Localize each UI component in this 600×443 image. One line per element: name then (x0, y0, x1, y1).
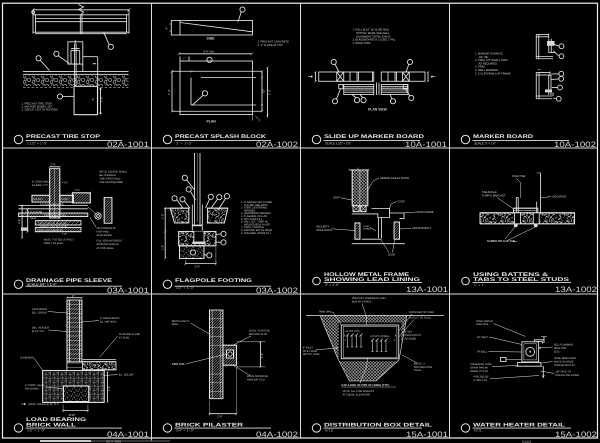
svg-text:FIN FLR SLAB: FIN FLR SLAB (25, 210, 42, 213)
svg-text:3" = 1'-0": 3" = 1'-0" (325, 283, 340, 287)
svg-text:1" = 1': 1" = 1' (474, 283, 484, 287)
svg-text:8": 8" (72, 295, 74, 298)
svg-text:TWO PIPES WILL: TWO PIPES WILL (99, 178, 121, 181)
svg-text:EA SIDE TYP: EA SIDE TYP (32, 184, 48, 187)
svg-text:N.T.S.: N.T.S. (474, 429, 482, 433)
svg-text:DOOR FRAME: DOOR FRAME (416, 211, 434, 214)
svg-text:WATER HEATER DETAIL: WATER HEATER DETAIL (473, 422, 566, 428)
svg-text:FTG: FTG (62, 181, 67, 184)
svg-text:FURR'G BRACKET: FURR'G BRACKET (482, 194, 506, 197)
svg-text:1'-8": 1'-8" (99, 96, 103, 102)
svg-text:BL. NATURAL: BL. NATURAL (100, 321, 117, 324)
svg-text:2'-0": 2'-0" (195, 264, 201, 268)
svg-text:4": 4" (165, 27, 169, 30)
svg-text:7": 7" (183, 57, 186, 61)
svg-text:13A-1002: 13A-1002 (555, 285, 597, 294)
svg-text:PRECAST TIRE STOP: PRECAST TIRE STOP (26, 134, 101, 140)
svg-text:SEAL: SEAL (30, 217, 37, 220)
svg-text:1'-4": 1'-4" (267, 89, 271, 95)
svg-text:AROUND SLEEVE: AROUND SLEEVE (97, 243, 119, 246)
svg-text:INSULATION: INSULATION (316, 229, 332, 232)
svg-text:1'-0": 1'-0" (161, 214, 164, 219)
svg-text:PIER AND: PIER AND (97, 231, 109, 234)
svg-text:3/4" = 1'-0": 3/4" = 1'-0" (176, 429, 195, 433)
svg-text:ANCHOR SLOT: ANCHOR SLOT (249, 333, 268, 336)
svg-text:TANK WALL: TANK WALL (319, 311, 334, 314)
svg-text:PLAN: PLAN (207, 120, 217, 124)
svg-text:TABS TO STEEL STUDS: TABS TO STEEL STUDS (473, 277, 570, 283)
svg-text:7'-0": 7'-0" (75, 189, 80, 192)
svg-text:FROM SEPTIC TANK: FROM SEPTIC TANK (409, 311, 434, 314)
svg-text:ON GRADE: ON GRADE (25, 387, 39, 390)
svg-text:ARMOR GRILLE DOOR: ARMOR GRILLE DOOR (380, 177, 409, 180)
svg-text:DRAIN TO FLR: DRAIN TO FLR (470, 370, 488, 373)
svg-text:MARKER BOARD: MARKER BOARD (473, 134, 533, 140)
svg-text:1/2" = 1'-0": 1/2" = 1'-0" (176, 286, 195, 290)
svg-text:SEL. GROUT: SEL. GROUT (32, 312, 48, 315)
svg-text:LINING: LINING (363, 227, 371, 230)
svg-text:SCREW TIE CLIP TAB: SCREW TIE CLIP TAB (487, 240, 515, 243)
svg-text:AS REQD: AS REQD (405, 338, 417, 341)
svg-text:FILL VOID W/ GROUT: FILL VOID W/ GROUT (97, 240, 124, 243)
svg-text:B.L. BELOW: B.L. BELOW (119, 373, 134, 376)
svg-text:1 1/2" = 1'-0": 1 1/2" = 1'-0" (27, 141, 48, 145)
svg-text:USE AS REQUIRED: USE AS REQUIRED (99, 181, 123, 184)
svg-text:HP VENT: HP VENT (477, 336, 489, 339)
svg-text:NOTE FTG SEE STRUCT: NOTE FTG SEE STRUCT (44, 238, 75, 241)
svg-text:1'-4": 1'-4" (108, 386, 111, 391)
svg-text:2'-0": 2'-0" (69, 413, 76, 417)
svg-text:1'-4": 1'-4" (167, 89, 171, 95)
svg-text:GROUT FILL ALL VOID: GROUT FILL ALL VOID (40, 225, 67, 228)
svg-text:2x4 KEY: 2x4 KEY (33, 198, 43, 201)
svg-text:03A-1001: 03A-1001 (107, 286, 149, 295)
svg-text:15A-1002: 15A-1002 (555, 430, 597, 439)
svg-text:10A-1002: 10A-1002 (554, 140, 596, 149)
svg-text:BRICK WALL: BRICK WALL (26, 422, 77, 428)
svg-text:9. CRUSHED STONE FILL: 9. CRUSHED STONE FILL (241, 232, 272, 235)
svg-text:02A-1002: 02A-1002 (256, 140, 298, 149)
svg-text:2. 1" SLOPE AT TOP: 2. 1" SLOPE AT TOP (258, 44, 283, 47)
svg-text:04A-1002: 04A-1002 (256, 430, 298, 439)
svg-text:SCALE: 1 1/2" = 1'-0": SCALE: 1 1/2" = 1'-0" (325, 141, 352, 145)
svg-text:N.T.S.: N.T.S. (325, 429, 334, 433)
svg-text:1'-6": 1'-6" (161, 245, 164, 250)
svg-text:WALL: WALL (172, 323, 180, 326)
svg-text:CAP & END OF PIPE W/ LINING (T: CAP & END OF PIPE W/ LINING (TYP) (341, 384, 389, 387)
svg-text:1/2 SLEEVE CAULK: 1/2 SLEEVE CAULK (40, 203, 64, 206)
svg-text:LEAD: LEAD (388, 254, 395, 257)
svg-text:10A-1001: 10A-1001 (405, 140, 447, 149)
svg-text:OUTLET LATERAL: OUTLET LATERAL (370, 335, 390, 338)
svg-text:3. EDGE TRIM: 3. EDGE TRIM (353, 42, 372, 45)
svg-text:ANCHOR TIES: ANCHOR TIES (247, 379, 265, 382)
svg-text:FLASHING: FLASHING (20, 356, 33, 359)
svg-text:AT PIPE WALL: AT PIPE WALL (97, 247, 115, 250)
svg-text:SIZE: SIZE (554, 351, 560, 354)
svg-text:WEEP HOLES @ 32" O.C.: WEEP HOLES @ 32" O.C. (28, 403, 59, 406)
svg-text:STOP: STOP (398, 200, 405, 203)
svg-text:8": 8" (92, 97, 95, 101)
svg-text:13A-1001: 13A-1001 (406, 285, 448, 294)
svg-text:CONC ENCASEMENT: CONC ENCASEMENT (37, 229, 64, 232)
svg-text:03A-1002: 03A-1002 (256, 286, 298, 295)
svg-text:GRIP: GRIP (333, 197, 340, 200)
svg-text:SIDE: SIDE (207, 37, 216, 41)
svg-text:THREAD OUTLET: THREAD OUTLET (554, 364, 576, 367)
svg-text:ALSO BRICK: ALSO BRICK (97, 234, 113, 237)
svg-text:FLAGPOLE FOOTING: FLAGPOLE FOOTING (175, 278, 252, 284)
svg-text:SCALE 3/4" = 1'-0": SCALE 3/4" = 1'-0" (27, 282, 57, 286)
svg-text:SEPTIC TANK: SEPTIC TANK (303, 353, 320, 356)
svg-text:5. Z CLIPS/RAILS AT FRAME: 5. Z CLIPS/RAILS AT FRAME (475, 72, 511, 75)
svg-text:ON CONCRETE: ON CONCRETE (97, 227, 116, 230)
svg-text:02A-1001: 02A-1001 (107, 140, 149, 149)
svg-text:AT SLAB: AT SLAB (119, 336, 130, 339)
svg-text:HP BELL: HP BELL (477, 350, 488, 353)
svg-text:PRECAST SPLASH BLOCK: PRECAST SPLASH BLOCK (175, 134, 266, 140)
svg-text:NOTE: SLEEVE SHALL: NOTE: SLEEVE SHALL (99, 170, 127, 173)
svg-text:2": 2" (259, 119, 262, 123)
svg-text:04A-1001: 04A-1001 (107, 430, 149, 439)
svg-text:SHOWING LEAD LINING: SHOWING LEAD LINING (324, 277, 420, 283)
svg-text:DISTRIBUTION BOX DETAIL: DISTRIBUTION BOX DETAIL (324, 422, 433, 428)
svg-text:OVERFLOW DRAIN: OVERFLOW DRAIN (555, 374, 579, 377)
svg-text:15A-1001: 15A-1001 (406, 430, 448, 439)
svg-text:3. GROUT / SET IN FOOTING: 3. GROUT / SET IN FOOTING (22, 108, 58, 111)
svg-text:SCALE: 3" = 1'-0": SCALE: 3" = 1'-0" (474, 141, 497, 145)
svg-text:CONT: CONT (62, 198, 70, 201)
svg-text:SLIDE UP MARKER BOARD: SLIDE UP MARKER BOARD (324, 134, 424, 140)
svg-text:2'-0": 2'-0" (217, 415, 223, 419)
svg-text:AT EQUAL ELEVATION: AT EQUAL ELEVATION (343, 394, 371, 397)
svg-text:4x4 TEE (TYP): 4x4 TEE (TYP) (345, 330, 361, 333)
svg-text:DWG FTG ELEV: DWG FTG ELEV (44, 242, 64, 245)
svg-text:ISOLATION: ISOLATION (552, 195, 566, 198)
svg-text:1'-4": 1'-4" (261, 353, 264, 358)
svg-text:OUTLET TO FIELD: OUTLET TO FIELD (409, 317, 432, 320)
svg-text:HOLD TAB: HOLD TAB (512, 175, 525, 178)
svg-text:3" = 1'-0": 3" = 1'-0" (176, 141, 193, 145)
svg-text:BRICK PILASTER: BRICK PILASTER (175, 422, 243, 428)
svg-text:6" ABV FLR: 6" ABV FLR (473, 379, 487, 382)
svg-text:ANCHOR BOLT: ANCHOR BOLT (412, 227, 432, 230)
svg-text:BE CLEARED: BE CLEARED (99, 174, 116, 177)
svg-text:7'-8": 7'-8" (51, 164, 56, 167)
svg-text:LINE PIPE: LINE PIPE (476, 323, 489, 326)
svg-text:CETT 4001: CETT 4001 (106, 439, 122, 443)
svg-text:BOX W/ COVER: BOX W/ COVER (352, 301, 371, 304)
svg-text:PLAN VIEW: PLAN VIEW (368, 108, 388, 112)
svg-text:3'-6" DIA.: 3'-6" DIA. (203, 50, 215, 54)
svg-text:10": 10" (262, 89, 266, 93)
svg-text:PIPE COL.: PIPE COL. (172, 362, 186, 366)
svg-text:2'-6": 2'-6" (18, 219, 21, 224)
svg-text:1/2" = 1'-0": 1/2" = 1'-0" (27, 429, 46, 433)
svg-text:TYP: TYP (62, 233, 67, 236)
svg-text:FIELD: FIELD (414, 369, 421, 372)
svg-text:PIPE SLEEVE SET: PIPE SLEEVE SET (44, 214, 67, 217)
svg-text:@ 16" O.C.: @ 16" O.C. (32, 330, 45, 333)
